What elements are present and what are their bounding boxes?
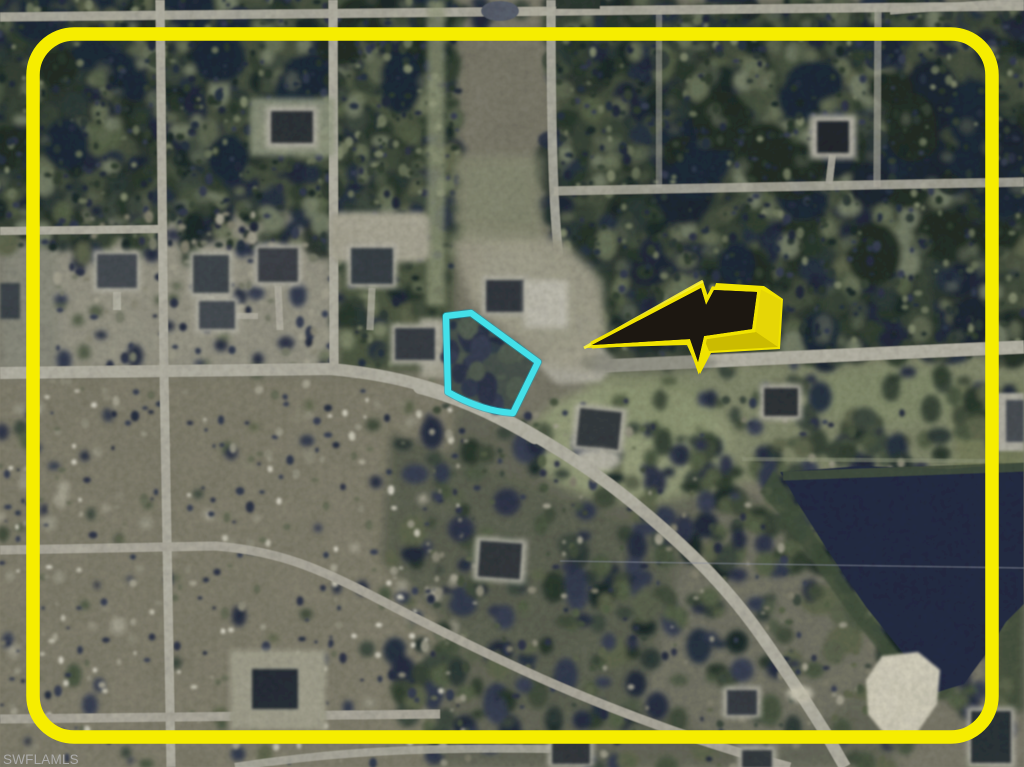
svg-text:SWFLAMLS: SWFLAMLS [3,752,79,767]
